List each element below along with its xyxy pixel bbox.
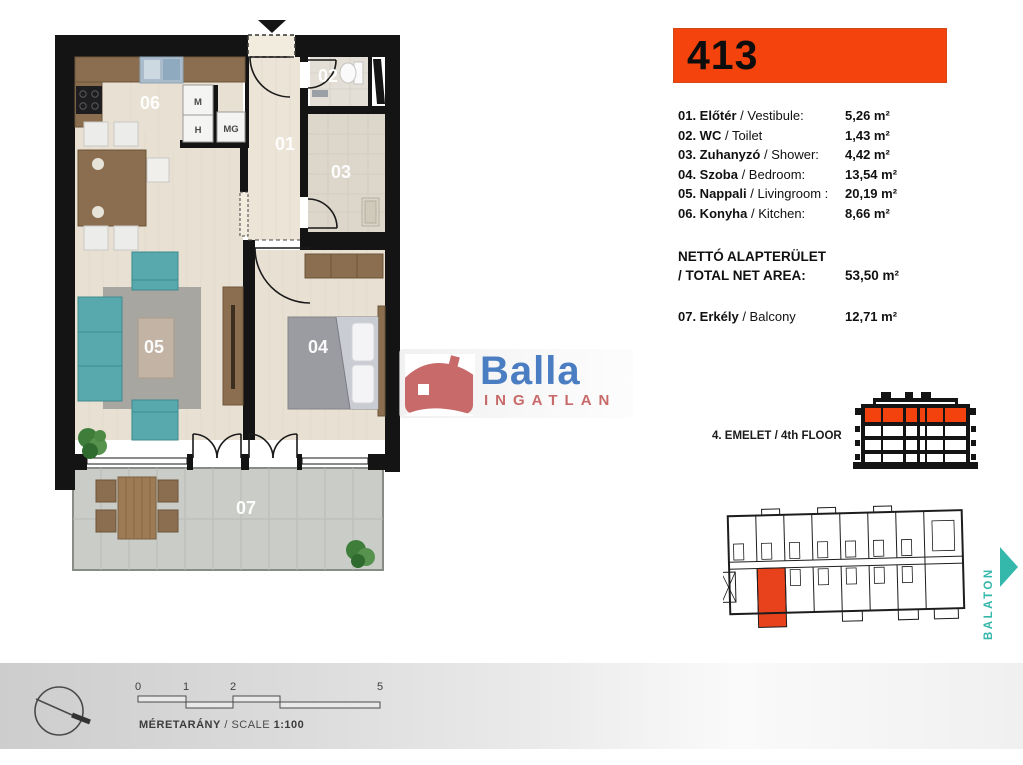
balcony-area-row: 07. Erkély / Balcony12,71 m² [678,307,946,326]
highlighted-floor-band [861,408,970,422]
room-area-value: 1,43 m² [845,126,890,146]
appliance-label-mg: MG [223,124,238,135]
balla-house-icon [405,354,475,416]
room-list-row: 03. Zuhanyzó / Shower:4,42 m² [678,145,946,165]
room-label-balcony: 07 [236,498,256,518]
balcony-area-value: 12,71 m² [845,307,897,326]
scale-tick-5: 5 [377,681,383,693]
room-area-value: 8,66 m² [845,204,890,224]
site-key-plan [723,503,981,643]
direction-arrow-icon [1000,547,1018,587]
building-elevation [853,382,978,479]
scale-caption: MÉRETARÁNY / SCALE 1:100 [139,719,304,731]
room-list-row: 02. WC / Toilet1,43 m² [678,126,946,146]
wardrobe [305,254,383,278]
floor-label: 4. EMELET / 4th FLOOR [712,430,842,442]
highlighted-unit [757,568,786,614]
room-area-list: 01. Előtér / Vestibule:5,26 m² 02. WC / … [678,106,946,224]
cooktop [76,86,102,114]
scale-tick-1: 1 [183,681,189,693]
total-line2: / TOTAL NET AREA:53,50 m² [678,266,946,285]
direction-label: BALATON [983,567,995,640]
room-label-shower: 03 [331,162,351,182]
total-area-value: 53,50 m² [845,266,899,285]
total-line1: NETTÓ ALAPTERÜLET [678,247,946,266]
room-label-livingroom: 05 [144,337,164,357]
logo-name: Balla [480,349,581,394]
room-label-vestibule: 01 [275,134,295,154]
room-list-row: 04. Szoba / Bedroom:13,54 m² [678,165,946,185]
room-area-value: 13,54 m² [845,165,897,185]
room-area-value: 5,26 m² [845,106,890,126]
floor-plan: M H MG [40,10,440,600]
north-compass-icon [32,682,94,742]
entrance-threshold [248,35,295,57]
logo-subtitle: INGATLAN [484,392,616,409]
unit-number: 413 [674,32,758,79]
entrance-arrow-icon [258,20,286,33]
room-label-kitchen: 06 [140,93,160,113]
scale-tick-2: 2 [230,681,236,693]
closet-dashed [240,192,248,236]
room-area-value: 4,42 m² [845,145,890,165]
balaton-direction: BALATON [978,540,1022,645]
room-area-value: 20,19 m² [845,184,897,204]
room-list-row: 06. Konyha / Kitchen:8,66 m² [678,204,946,224]
windows [87,458,368,464]
apartment-floorplan-page: M H MG [0,0,1023,765]
room-list-row: 05. Nappali / Livingroom :20,19 m² [678,184,946,204]
room-label-wc: 02 [318,66,338,86]
total-net-area: NETTÓ ALAPTERÜLET / TOTAL NET AREA:53,50… [678,247,946,285]
appliance-label-h: H [195,125,202,136]
highlighted-unit-balcony [758,613,786,628]
room-label-bedroom: 04 [308,337,328,357]
scale-tick-0: 0 [135,681,141,693]
unit-number-banner: 413 [673,28,947,83]
room-list-row: 01. Előtér / Vestibule:5,26 m² [678,106,946,126]
appliance-label-m: M [194,97,202,108]
